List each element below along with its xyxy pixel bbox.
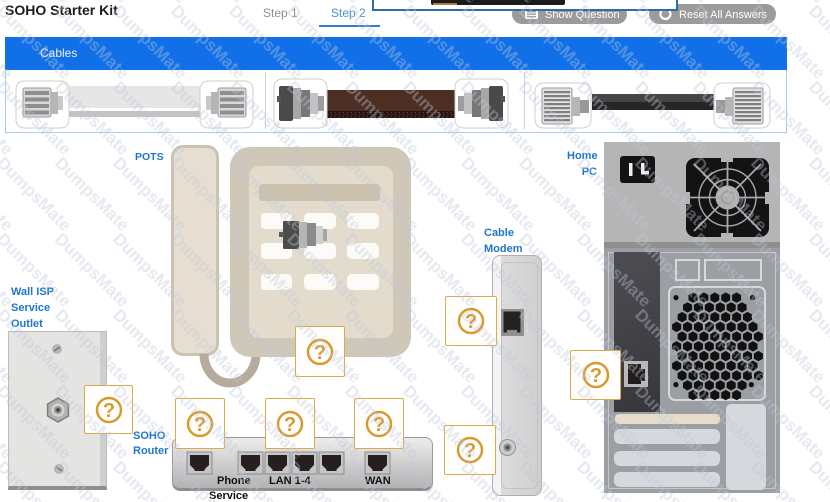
svg-text:?: ? bbox=[284, 414, 296, 436]
svg-text:DumpsMate: DumpsMate bbox=[399, 153, 481, 235]
svg-text:DumpsMate: DumpsMate bbox=[805, 381, 830, 463]
svg-text:DumpsMate: DumpsMate bbox=[805, 0, 830, 7]
svg-text:DumpsMate: DumpsMate bbox=[805, 305, 830, 387]
svg-text:?: ? bbox=[373, 414, 385, 436]
svg-text:DumpsMate: DumpsMate bbox=[0, 153, 17, 235]
svg-text:?: ? bbox=[464, 440, 476, 462]
svg-text:DumpsMate: DumpsMate bbox=[167, 0, 249, 7]
svg-text:DumpsMate: DumpsMate bbox=[51, 229, 133, 311]
svg-text:?: ? bbox=[194, 414, 206, 436]
svg-text:DumpsMate: DumpsMate bbox=[109, 0, 191, 7]
svg-text:DumpsMate: DumpsMate bbox=[805, 153, 830, 235]
svg-text:?: ? bbox=[589, 365, 601, 387]
svg-text:?: ? bbox=[465, 311, 477, 333]
svg-text:DumpsMate: DumpsMate bbox=[805, 1, 830, 83]
svg-text:DumpsMate: DumpsMate bbox=[805, 457, 830, 502]
svg-text:DumpsMate: DumpsMate bbox=[0, 153, 75, 235]
svg-text:DumpsMate: DumpsMate bbox=[51, 153, 133, 235]
svg-text:DumpsMate: DumpsMate bbox=[805, 77, 830, 159]
svg-text:DumpsMate: DumpsMate bbox=[457, 153, 539, 235]
svg-text:DumpsMate: DumpsMate bbox=[805, 229, 830, 311]
svg-text:?: ? bbox=[102, 400, 114, 422]
svg-text:?: ? bbox=[314, 342, 326, 364]
